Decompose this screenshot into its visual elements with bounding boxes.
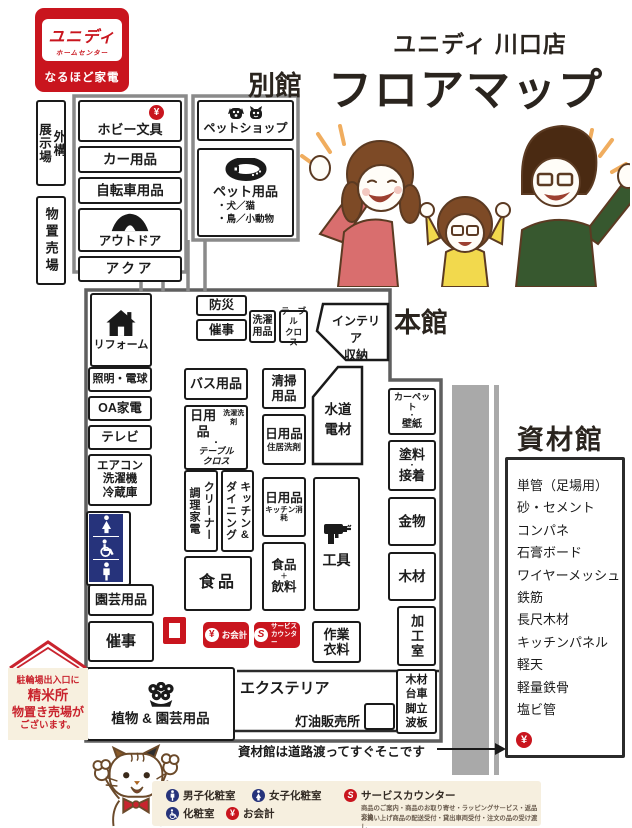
banner-line4: ございます。 (20, 720, 76, 732)
materials-item: キッチンパネル (517, 632, 622, 654)
materials-item: 長尺木材 (517, 609, 622, 631)
yen-icon: ¥ (516, 732, 532, 748)
kerosene-stand-box (364, 703, 395, 730)
dept-tools-label: 工具 (323, 552, 351, 569)
restroom-area (86, 511, 131, 586)
dept-outdoor-label: アウトドア (99, 234, 162, 249)
annex-label: 別館 (248, 64, 302, 103)
dept-oa-appliance: OA家電 (88, 396, 152, 421)
materials-item: 軽天 (517, 654, 622, 676)
womens-restroom-icon (252, 789, 265, 802)
dept-laundry-goods: 洗濯 用品 (249, 310, 276, 343)
dept-bath-label: バス用品 (190, 376, 242, 391)
dept-laundry-label: 洗濯 用品 (253, 315, 273, 339)
dept-event-lower: 催事 (88, 621, 154, 662)
dept-aircon-label: エアコン 洗濯機 冷蔵庫 (97, 460, 143, 501)
legend-service-label: サービスカウンター (361, 788, 456, 803)
dept-hardware: 金物 (388, 497, 436, 546)
dept-daily-laundry-main: 日用品 (186, 408, 220, 439)
dept-food-drink-b: 飲料 (271, 580, 296, 595)
legend-accessible-label: 化粧室 (183, 806, 215, 821)
materials-item: 単管（足場用） (517, 475, 622, 497)
materials-item: 軽量鉄骨 (517, 677, 622, 699)
mens-restroom-icon (166, 789, 179, 802)
service-icon: S (254, 628, 268, 642)
dept-reform: リフォーム (90, 293, 152, 367)
dept-event-lower-label: 催事 (106, 633, 136, 651)
dept-workwear-label: 作業 衣料 (323, 627, 349, 658)
dept-daily-house-main: 日用品 (265, 427, 303, 442)
dept-tools: 工具 (313, 477, 360, 611)
rice-mill-banner: 駐輪場出入口に 精米所 物置き売場が ございます。 (8, 668, 88, 740)
logo-tagline: なるほど家電 (45, 69, 120, 85)
dept-lighting-label: 照明・電球 (93, 373, 148, 386)
dept-pet-shop-label: ペットショップ (203, 121, 287, 135)
dept-car-goods: カー用品 (78, 146, 182, 173)
service-badge-label: サービス カウンター (271, 623, 300, 646)
dept-storage-sales-label: 物置売場 (43, 207, 58, 275)
dept-interior-storage-label: インテリア 収納 (328, 312, 384, 363)
dept-aqua-label: アクア (106, 261, 155, 277)
yen-icon: ¥ (226, 807, 239, 820)
dept-paint-b: 接着 (399, 468, 425, 483)
dept-food-drink-plus: ＋ (281, 573, 288, 580)
logo-inner-panel: ユニディ ホームセンター (42, 19, 122, 61)
legend-womens: 女子化粧室 (252, 788, 322, 803)
dept-carpet-wallpaper: カーペット ・ 壁紙 (388, 388, 436, 435)
accessible-restroom-icon (98, 539, 115, 557)
materials-item: コンパネ (517, 520, 622, 542)
dept-wood-label: 木材 (399, 569, 426, 585)
dept-pet-shop: ペットショップ (197, 100, 294, 141)
dept-outdoor-display-label: 外構 展示場 (37, 123, 66, 164)
materials-item: 砂・セメント (517, 497, 622, 519)
dept-tv-label: テレビ (101, 430, 139, 445)
dept-daily-laundry-dot: ・ (212, 440, 220, 446)
dept-pet-goods-note: ・犬／猫 ・鳥／小動物 (217, 201, 274, 227)
flower-bunch-icon (144, 682, 178, 709)
legend-panel: 男子化粧室 女子化粧室 化粧室 ¥ お会計 S サービスカウンター 商品のご案内… (152, 781, 541, 826)
dept-tablecloth-label: テーブル クロス (281, 306, 306, 346)
materials-item: 塩ビ管 (517, 699, 622, 721)
dept-bath-goods: バス用品 (184, 368, 248, 400)
dept-plants-label: 植物 & 園芸用品 (111, 711, 209, 727)
womens-restroom-icon (99, 515, 114, 534)
checkout-badge: ¥ お会計 (203, 622, 249, 648)
dept-lumber-cart: 木材 台車 脚立 波板 (396, 669, 437, 734)
dept-food: 食品 (184, 556, 252, 611)
dept-hardware-label: 金物 (399, 514, 426, 530)
restroom-panel (89, 514, 123, 582)
dept-food-label: 食品 (199, 574, 237, 593)
pet-collar-icon (223, 158, 269, 182)
dept-daily-laundry-sub2: テーブル クロス (198, 447, 233, 467)
dept-kitchen-dining-label: キッチン& ダイニング (223, 481, 252, 542)
road-edge-line (494, 385, 499, 775)
dept-garden-label: 園芸用品 (95, 592, 147, 607)
road (452, 385, 489, 775)
dept-reform-label: リフォーム (94, 339, 149, 352)
dept-kitchen-dining: キッチン& ダイニング (221, 470, 254, 552)
house-icon (105, 309, 137, 337)
dept-hobby-label: ホビー文具 (97, 122, 162, 137)
dept-wood: 木材 (388, 552, 436, 601)
main-building-label: 本館 (394, 301, 448, 340)
yen-icon: ¥ (149, 105, 164, 120)
banner-line2: 精米所 (28, 687, 69, 705)
dept-workshop-label: 加工室 (409, 614, 424, 659)
dept-tv: テレビ (88, 425, 152, 450)
mens-restroom-icon (99, 562, 114, 581)
exterior-area-label: エクステリア (240, 677, 330, 698)
materials-item: 鉄筋 (517, 587, 622, 609)
materials-item: ワイヤーメッシュ (517, 565, 622, 587)
legend-mens: 男子化粧室 (166, 788, 236, 803)
dept-event-upper-label: 催事 (209, 323, 234, 338)
dept-lumber-cart-label: 木材 台車 脚立 波板 (406, 673, 428, 730)
family-illustration (300, 112, 630, 287)
dept-daily-house-sub: 住居洗剤 (267, 442, 301, 452)
legend-womens-label: 女子化粧室 (269, 788, 322, 803)
dept-tablecloth: テーブル クロス (279, 310, 308, 343)
dept-event-upper: 催事 (196, 319, 247, 341)
dept-aqua: アクア (78, 256, 182, 282)
dept-carpet-a: カーペット (390, 392, 434, 413)
dept-workshop: 加工室 (397, 606, 436, 666)
banner-line3: 物置き売場が (12, 705, 84, 721)
dept-daily-house: 日用品 住居洗剤 (262, 414, 306, 465)
page-title: フロアマップ (320, 54, 612, 118)
store-logo: ユニディ ホームセンター なるほど家電 (35, 8, 129, 92)
banner-line1: 駐輪場出入口に (16, 675, 79, 687)
dept-lighting: 照明・電球 (88, 367, 152, 392)
materials-building: 単管（足場用） 砂・セメント コンパネ 石膏ボード ワイヤーメッシュ 鉄筋 長尺… (505, 457, 625, 758)
entrance-marker (163, 617, 186, 644)
dept-cleaning-goods: 清掃 用品 (262, 368, 306, 409)
dept-food-drink-a: 食品 (271, 558, 296, 573)
dept-cleaning-label: 清掃 用品 (271, 374, 296, 404)
dept-outdoor: アウトドア (78, 208, 182, 252)
dept-plants-garden: 植物 & 園芸用品 (86, 667, 235, 741)
dept-daily-laundry: 日用品 洗濯洗剤 ・ テーブル クロス (184, 405, 248, 470)
dept-aircon: エアコン 洗濯機 冷蔵庫 (88, 454, 152, 506)
dept-daily-kitchen-main: 日用品 (265, 491, 303, 506)
legend-service: S サービスカウンター (344, 788, 456, 803)
service-counter-badge: S サービス カウンター (254, 622, 300, 648)
dept-carpet-b: 壁紙 (402, 419, 422, 431)
logo-brand: ユニディ (49, 23, 116, 47)
materials-building-label: 資材館 (517, 418, 604, 457)
dept-bicycle-goods: 自転車用品 (78, 177, 182, 204)
materials-item: 石膏ボード (517, 542, 622, 564)
yen-icon: ¥ (205, 628, 219, 642)
materials-item-list: 単管（足場用） 砂・セメント コンパネ 石膏ボード ワイヤーメッシュ 鉄筋 長尺… (508, 460, 622, 721)
dept-storage-sales: 物置売場 (36, 196, 66, 285)
kerosene-label: 灯油販売所 (295, 711, 360, 730)
dept-oa-label: OA家電 (98, 401, 142, 416)
legend-checkout-label: お会計 (243, 806, 275, 821)
tent-icon (108, 211, 152, 233)
dog-face-icon (228, 106, 244, 120)
dept-pet-goods-label: ペット用品 (213, 184, 278, 199)
legend-accessible: 化粧室 (166, 806, 215, 821)
accessible-restroom-icon (166, 807, 179, 820)
dept-cleaner-label: クリーナー 調理家電 (187, 481, 216, 541)
dept-daily-kitchen-sub: キッチン消耗 (264, 506, 304, 524)
dept-disaster: 防災 (196, 295, 247, 316)
legend-checkout: ¥ お会計 (226, 806, 275, 821)
cat-face-icon (248, 106, 264, 120)
materials-access-note: 資材館は道路渡ってすぐそこです (238, 741, 425, 760)
dept-daily-laundry-sub: 洗濯洗剤 (221, 410, 246, 427)
dept-daily-kitchen: 日用品 キッチン消耗 (262, 477, 306, 537)
dept-bicycle-label: 自転車用品 (96, 183, 164, 199)
dept-paint-a: 塗料 (399, 447, 425, 462)
legend-mens-label: 男子化粧室 (183, 788, 236, 803)
dept-workwear: 作業 衣料 (312, 621, 361, 663)
dept-hobby-stationery: ¥ ホビー文具 (78, 100, 182, 142)
logo-brand-sub: ホームセンター (56, 47, 108, 57)
dept-outdoor-display: 外構 展示場 (36, 100, 66, 186)
dept-cleaner-appliance: クリーナー 調理家電 (184, 470, 218, 552)
dept-paint-adhesive: 塗料 ・ 接着 (388, 440, 436, 491)
dept-car-label: カー用品 (103, 152, 157, 168)
dept-garden-goods: 園芸用品 (88, 584, 154, 616)
pet-corridor (188, 240, 205, 292)
dept-water-electric-label: 水道 電材 (316, 398, 360, 438)
dept-food-drink: 食品 ＋ 飲料 (262, 542, 306, 611)
floor-map-page: ユニディ ホームセンター なるほど家電 ユニディ 川口店 フロアマップ 別館 本… (0, 0, 632, 828)
legend-service-desc2: お買い上げ商品の配送受付・貸出車両受付・注文の品の受け渡し (361, 813, 541, 828)
dept-disaster-label: 防災 (209, 298, 234, 313)
service-icon: S (344, 789, 357, 802)
drill-icon (322, 519, 352, 546)
dept-pet-goods: ペット用品 ・犬／猫 ・鳥／小動物 (197, 148, 294, 237)
checkout-badge-label: お会計 (222, 629, 248, 641)
